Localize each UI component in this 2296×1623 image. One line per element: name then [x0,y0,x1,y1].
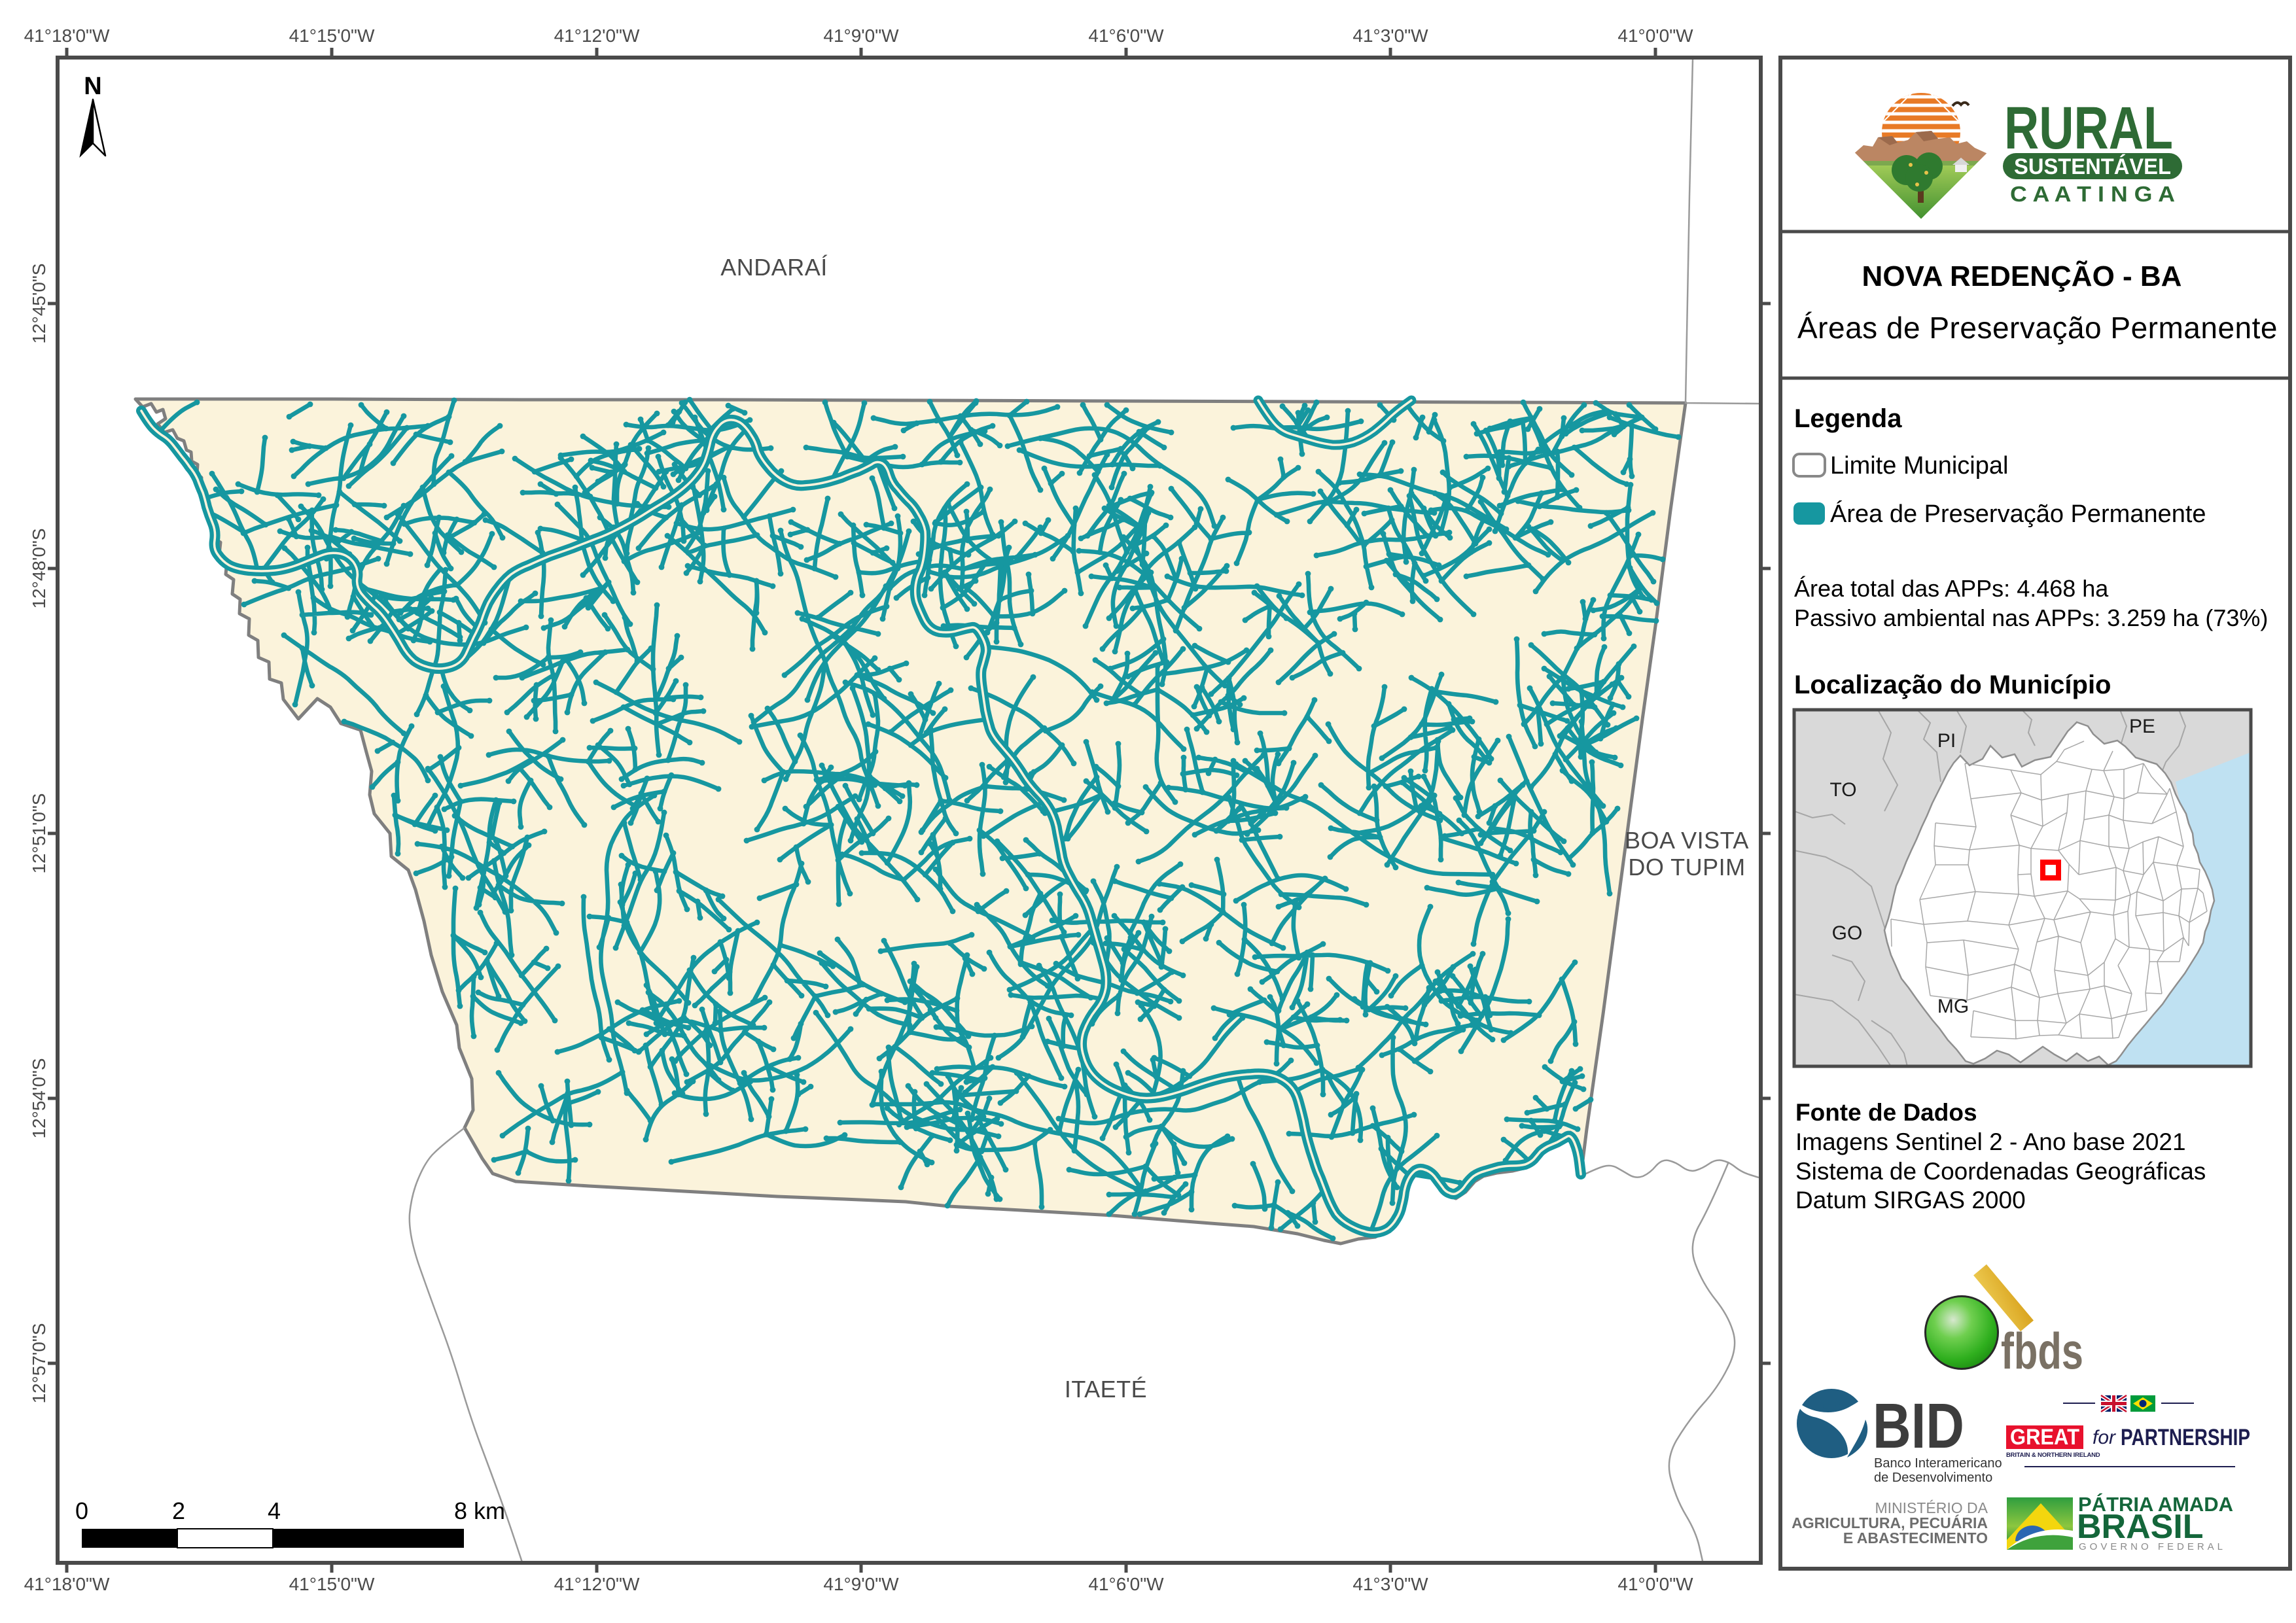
svg-text:12°57'0"S: 12°57'0"S [29,1323,49,1403]
svg-text:8 km: 8 km [454,1497,505,1524]
svg-text:Áreas de Preservação Permanent: Áreas de Preservação Permanente [1797,311,2278,345]
svg-text:12°54'0"S: 12°54'0"S [29,1058,49,1138]
svg-text:Banco Interamericano: Banco Interamericano [1874,1456,2002,1471]
svg-text:BRASIL: BRASIL [2077,1508,2204,1546]
svg-text:41°3'0"W: 41°3'0"W [1352,26,1428,46]
svg-text:41°12'0"W: 41°12'0"W [554,1574,640,1594]
svg-text:12°51'0"S: 12°51'0"S [29,793,49,873]
svg-text:TO: TO [1829,779,1856,801]
svg-text:2: 2 [172,1497,185,1524]
svg-text:AGRICULTURA, PECUÁRIA: AGRICULTURA, PECUÁRIA [1792,1514,1988,1531]
svg-text:41°9'0"W: 41°9'0"W [823,26,899,46]
svg-text:Fonte de Dados: Fonte de Dados [1795,1099,1977,1126]
svg-text:BRITAIN & NORTHERN IRELAND: BRITAIN & NORTHERN IRELAND [2006,1452,2100,1459]
svg-text:41°18'0"W: 41°18'0"W [24,26,110,46]
svg-text:GREAT: GREAT [2010,1425,2079,1450]
svg-text:41°18'0"W: 41°18'0"W [24,1574,110,1594]
svg-text:BID: BID [1873,1390,1964,1461]
svg-text:for: for [2093,1427,2116,1448]
svg-text:E ABASTECIMENTO: E ABASTECIMENTO [1843,1529,1988,1546]
svg-text:MG: MG [1937,996,1969,1017]
svg-text:Área total das APPs: 4.468 ha: Área total das APPs: 4.468 ha [1794,575,2109,602]
svg-text:41°9'0"W: 41°9'0"W [823,1574,899,1594]
svg-text:41°6'0"W: 41°6'0"W [1088,1574,1164,1594]
svg-text:GO: GO [1832,922,1863,944]
svg-text:NOVA REDENÇÃO - BA: NOVA REDENÇÃO - BA [1862,260,2182,292]
svg-text:PI: PI [1937,730,1956,752]
svg-text:Área de Preservação Permanente: Área de Preservação Permanente [1830,500,2206,528]
svg-text:41°12'0"W: 41°12'0"W [554,26,640,46]
svg-text:N: N [84,73,101,100]
svg-text:GOVERNO FEDERAL: GOVERNO FEDERAL [2079,1541,2226,1552]
svg-text:de Desenvolvimento: de Desenvolvimento [1874,1471,1992,1485]
svg-text:Legenda: Legenda [1794,404,1902,433]
svg-text:41°15'0"W: 41°15'0"W [289,1574,375,1594]
svg-text:PE: PE [2129,716,2155,737]
svg-text:PARTNERSHIP: PARTNERSHIP [2121,1425,2250,1450]
svg-text:4: 4 [268,1497,281,1524]
svg-text:Localização do Município: Localização do Município [1794,671,2111,699]
svg-text:41°0'0"W: 41°0'0"W [1617,1574,1693,1594]
svg-text:BOA VISTA: BOA VISTA [1625,827,1749,854]
svg-text:Datum SIRGAS 2000: Datum SIRGAS 2000 [1795,1187,2026,1213]
svg-text:RURAL: RURAL [2004,95,2173,162]
svg-text:ANDARAÍ: ANDARAÍ [720,254,828,281]
svg-text:ITAETÉ: ITAETÉ [1065,1376,1147,1403]
svg-text:DO TUPIM: DO TUPIM [1628,854,1745,881]
svg-text:Limite Municipal: Limite Municipal [1830,452,2008,480]
svg-text:12°45'0"S: 12°45'0"S [29,263,49,343]
svg-text:Imagens Sentinel 2 - Ano base: Imagens Sentinel 2 - Ano base 2021 [1795,1128,2186,1155]
svg-text:Passivo ambiental nas APPs: 3.: Passivo ambiental nas APPs: 3.259 ha (73… [1794,604,2268,631]
svg-text:41°3'0"W: 41°3'0"W [1352,1574,1428,1594]
svg-text:C A A T I N G A: C A A T I N G A [2010,182,2175,206]
svg-text:fbds: fbds [2001,1322,2083,1380]
svg-text:41°0'0"W: 41°0'0"W [1617,26,1693,46]
svg-text:41°15'0"W: 41°15'0"W [289,26,375,46]
svg-text:SUSTENTÁVEL: SUSTENTÁVEL [2014,154,2171,179]
svg-text:Sistema de Coordenadas Geográf: Sistema de Coordenadas Geográficas [1795,1158,2206,1185]
svg-text:41°6'0"W: 41°6'0"W [1088,26,1164,46]
svg-text:12°48'0"S: 12°48'0"S [29,528,49,608]
svg-text:0: 0 [75,1497,88,1524]
